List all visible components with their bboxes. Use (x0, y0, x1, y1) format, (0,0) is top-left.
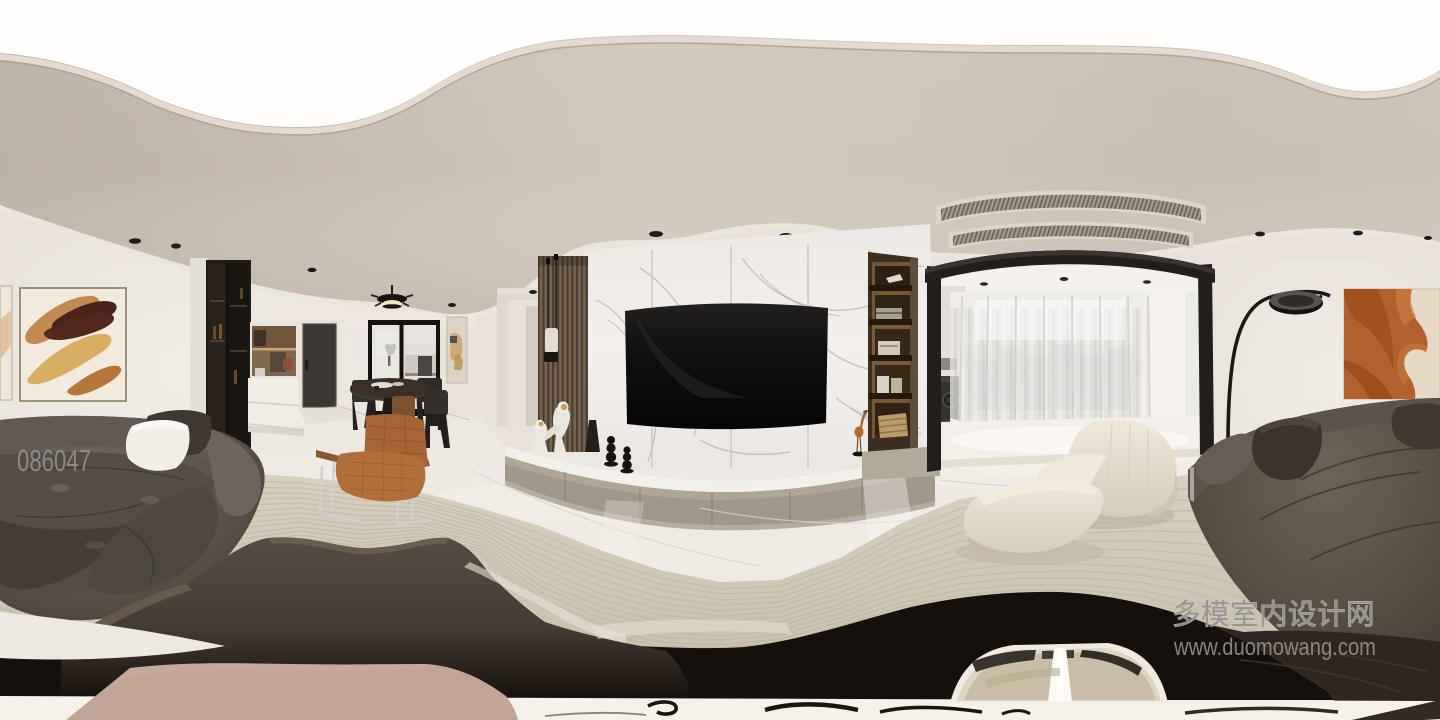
svg-text:086047: 086047 (17, 443, 91, 478)
svg-text:多模室内设计网: 多模室内设计网 (1172, 599, 1375, 631)
svg-text:www.duomowang.com: www.duomowang.com (1173, 634, 1376, 661)
